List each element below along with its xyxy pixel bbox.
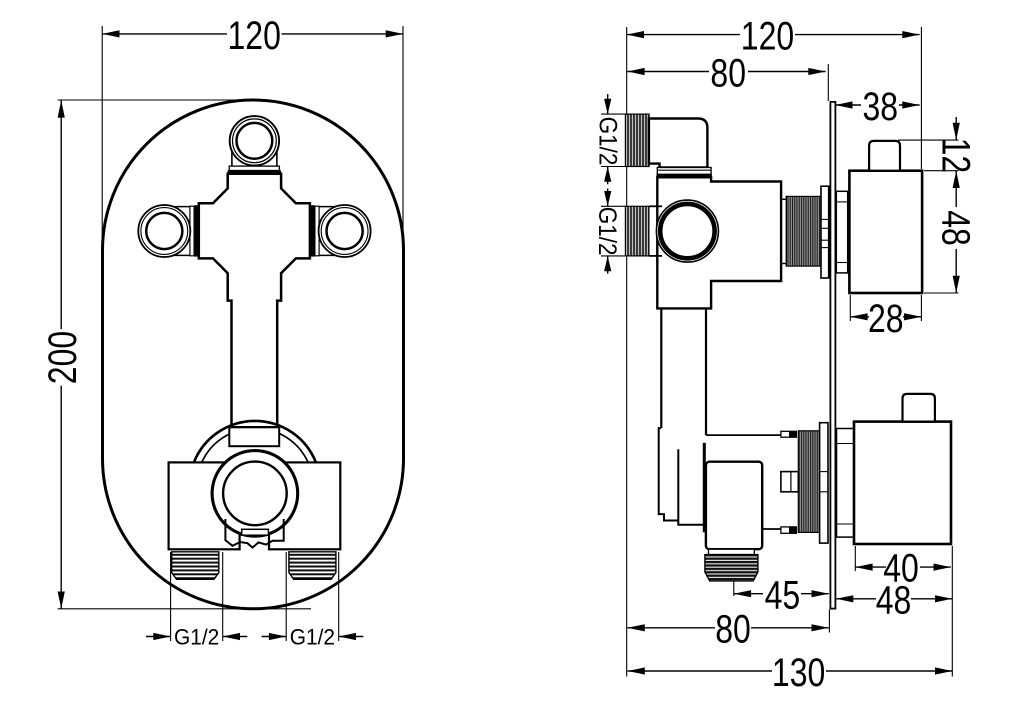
svg-text:48: 48 <box>876 577 912 622</box>
svg-text:G1/2: G1/2 <box>290 625 335 650</box>
svg-text:38: 38 <box>862 84 898 129</box>
svg-text:80: 80 <box>715 606 751 651</box>
svg-text:G1/2: G1/2 <box>174 625 219 650</box>
svg-text:45: 45 <box>765 572 801 617</box>
svg-text:120: 120 <box>228 12 281 57</box>
svg-text:12: 12 <box>934 138 979 174</box>
svg-text:120: 120 <box>741 13 794 58</box>
svg-text:130: 130 <box>772 649 825 694</box>
svg-text:28: 28 <box>868 295 904 340</box>
svg-text:48: 48 <box>934 210 979 246</box>
svg-text:200: 200 <box>40 331 85 384</box>
svg-text:G1/2: G1/2 <box>593 207 621 256</box>
svg-text:80: 80 <box>710 50 746 95</box>
svg-text:G1/2: G1/2 <box>593 117 621 166</box>
